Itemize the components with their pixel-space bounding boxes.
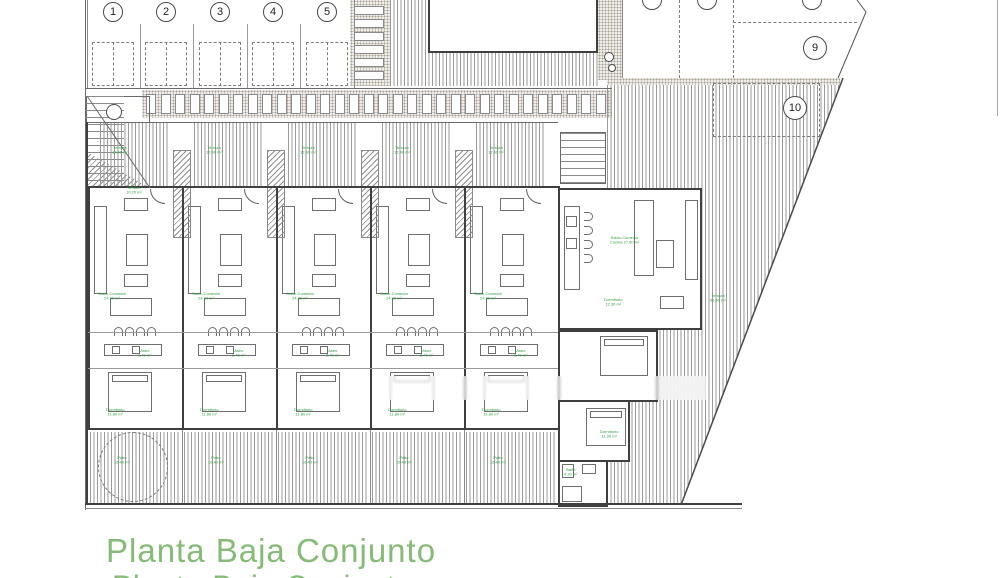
- shrub-icon: [608, 64, 616, 72]
- room-label: Patio 16.40 m²: [302, 456, 318, 465]
- room-label: Dormitorio 12.30 m²: [604, 298, 622, 307]
- entry-door-arc: [338, 189, 353, 204]
- room-label: Aseo 2.40 m²: [232, 349, 246, 358]
- paver-tile: [552, 94, 562, 114]
- wall-segment: [85, 508, 742, 509]
- bed-pillow: [590, 411, 622, 418]
- paver-tile: [354, 58, 384, 67]
- paver-tile: [204, 94, 214, 114]
- unit-patio: [184, 432, 274, 503]
- paver-tile: [335, 94, 345, 114]
- parking-stall-number: 5: [317, 2, 337, 22]
- paver-tile: [494, 94, 504, 114]
- wall-segment: [622, 0, 623, 78]
- bed-pillow: [300, 375, 336, 382]
- bed-pillow: [604, 339, 644, 346]
- room-label: Terraza 12.40 m²: [300, 146, 316, 155]
- room-label: Terraza 12.40 m²: [206, 146, 222, 155]
- unit-front-terrace: [382, 123, 452, 187]
- armchair: [124, 274, 148, 287]
- wall-segment: [182, 430, 183, 503]
- bed-pillow: [206, 375, 242, 382]
- room-label: Salón-Comedor 24.30 m²: [380, 292, 408, 301]
- armchair: [218, 198, 242, 211]
- armchair: [124, 198, 148, 211]
- room-label: Dormitorio 11.80 m²: [294, 408, 312, 417]
- paver-tile: [354, 45, 384, 54]
- clipped-stall-marker: [802, 0, 822, 10]
- wall-segment: [85, 503, 742, 505]
- room-label: Dormitorio 11.80 m²: [200, 408, 218, 417]
- paver-tile: [581, 94, 591, 114]
- paver-tile: [233, 94, 243, 114]
- unit-patio: [278, 432, 368, 503]
- paver-tile: [219, 94, 229, 114]
- parking-stall-midline: [327, 42, 328, 86]
- coffee-table: [656, 240, 674, 268]
- armchair: [406, 274, 430, 287]
- forecourt-divider: [679, 0, 680, 78]
- room-label: Terraza 12.40 m²: [112, 146, 128, 155]
- clipped-stall-marker: [697, 0, 717, 10]
- parking-stall-number: 4: [263, 2, 283, 22]
- paver-tile: [407, 94, 417, 114]
- paver-tile: [248, 94, 258, 114]
- armchair: [312, 198, 336, 211]
- plan-title: Planta Baja Conjunto: [106, 532, 436, 570]
- plan-subtitle-clipped: Planta Baja Conjunto: [112, 570, 472, 578]
- room-label: Dormitorio 11.80 m²: [388, 408, 406, 417]
- forecourt-divider: [733, 22, 857, 23]
- parking-stall-midline: [113, 42, 114, 86]
- wall-segment: [87, 0, 88, 88]
- room-label: Salón-Comedor 24.30 m²: [192, 292, 220, 301]
- wall-segment: [88, 368, 558, 369]
- paver-tile: [393, 94, 403, 114]
- armchair: [218, 274, 242, 287]
- paver-tile: [523, 94, 533, 114]
- parking-stall-number: 1: [103, 2, 123, 22]
- shrub-icon: [604, 52, 614, 62]
- sink-icon: [206, 346, 214, 354]
- wall-segment: [193, 24, 194, 88]
- parking-stall-midline: [166, 42, 167, 86]
- paver-tile: [354, 6, 384, 15]
- unit-patio: [466, 432, 556, 503]
- unit-front-terrace: [288, 123, 358, 187]
- swimming-pool: [428, 0, 598, 53]
- cooktop-icon: [566, 216, 577, 227]
- zone-marker-10: 10: [783, 96, 807, 120]
- coffee-table: [126, 234, 148, 266]
- room-label: Dormitorio 11.80 m²: [482, 408, 500, 417]
- sink-icon: [300, 346, 308, 354]
- wall-segment: [88, 332, 558, 333]
- wall-segment: [354, 0, 355, 88]
- room-label: Dormitorio 11.80 m²: [106, 408, 124, 417]
- coffee-table: [220, 234, 242, 266]
- paver-tile: [190, 94, 200, 114]
- wall-segment: [88, 122, 558, 123]
- room-label: Salón-Comedor 24.30 m²: [286, 292, 314, 301]
- room-label: Salón-Comedor Cocina 27.60 m²: [610, 236, 639, 245]
- wall-segment: [300, 24, 301, 88]
- unit-patio: [372, 432, 462, 503]
- paver-tile: [378, 94, 388, 114]
- room-label: Patio 16.40 m²: [490, 456, 506, 465]
- end-unit-stairs: [560, 132, 606, 184]
- entry-door-arc: [526, 189, 541, 204]
- paver-tile: [354, 32, 384, 41]
- wall-segment: [88, 428, 560, 430]
- wall-segment: [997, 0, 998, 116]
- plan-subtitle-text: Planta Baja Conjunto: [112, 570, 414, 578]
- paver-tile: [277, 94, 287, 114]
- paver-tile: [349, 94, 359, 114]
- armchair: [312, 274, 336, 287]
- unit-front-terrace: [194, 123, 264, 187]
- paver-tile: [175, 94, 185, 114]
- bar-stool-icon: [584, 212, 593, 221]
- entry-door-arc: [244, 189, 259, 204]
- sink-icon: [566, 238, 577, 249]
- paver-tile: [538, 94, 548, 114]
- entry-door-arc: [150, 189, 165, 204]
- armchair: [406, 198, 430, 211]
- armchair: [500, 198, 524, 211]
- paver-tile: [422, 94, 432, 114]
- sofa: [685, 200, 698, 280]
- sink-icon: [488, 346, 496, 354]
- paver-tile: [262, 94, 272, 114]
- bar-stool-icon: [584, 254, 593, 263]
- entry-door-arc: [432, 189, 447, 204]
- washbasin-icon: [582, 464, 596, 474]
- armchair: [500, 274, 524, 287]
- wall-segment: [558, 188, 560, 505]
- wall-segment: [464, 430, 465, 503]
- floor-plan-canvas: 12345 910 Terraza 12.40 m²Terraza 12.40 …: [0, 0, 1000, 578]
- wall-segment: [182, 188, 184, 430]
- room-label: Salón-Comedor 24.30 m²: [474, 292, 502, 301]
- room-label: Terraza 96.40 m²: [710, 294, 726, 303]
- paver-tile: [596, 94, 606, 114]
- room-label: Terraza 12.40 m²: [394, 146, 410, 155]
- paver-tile: [291, 94, 301, 114]
- paver-tile: [436, 94, 446, 114]
- parking-stall-number: 3: [210, 2, 230, 22]
- room-label: Patio 16.40 m²: [396, 456, 412, 465]
- paver-tile: [306, 94, 316, 114]
- paver-tile: [451, 94, 461, 114]
- clipped-stall-marker: [642, 0, 662, 10]
- coffee-table: [408, 234, 430, 266]
- paver-tile: [509, 94, 519, 114]
- wall-segment: [247, 24, 248, 88]
- armchair: [660, 296, 684, 309]
- wall-segment: [370, 430, 371, 503]
- sink-icon: [394, 346, 402, 354]
- coffee-table: [314, 234, 336, 266]
- room-label: Patio 16.40 m²: [208, 456, 224, 465]
- zone-marker-9: 9: [803, 36, 827, 60]
- watermark-blur-band: [388, 376, 706, 400]
- coffee-table: [502, 234, 524, 266]
- forecourt-divider: [733, 0, 734, 78]
- stepping-stone-icon: [106, 104, 122, 120]
- paver-tile: [480, 94, 490, 114]
- bar-stool-icon: [584, 226, 593, 235]
- parking-stall-midline: [220, 42, 221, 86]
- parking-stall-number: 2: [156, 2, 176, 22]
- paver-tile: [161, 94, 171, 114]
- parking-stall-midline: [273, 42, 274, 86]
- room-label: Salón-Comedor 24.30 m²: [98, 292, 126, 301]
- room-label: Aseo 2.40 m²: [420, 349, 434, 358]
- room-label: Dormitorio 11.90 m²: [600, 430, 618, 439]
- wall-segment: [370, 188, 372, 430]
- room-label: Aseo 2.40 m²: [514, 349, 528, 358]
- room-label: Baño 4.20 m²: [564, 468, 578, 477]
- room-label: Terraza 12.40 m²: [488, 146, 504, 155]
- paver-tile: [465, 94, 475, 114]
- paver-tile: [364, 94, 374, 114]
- unit-front-terrace: [476, 123, 546, 187]
- paver-tile: [567, 94, 577, 114]
- bar-stool-icon: [584, 240, 593, 249]
- shower-tray-icon: [562, 486, 582, 502]
- room-label: Aseo 2.40 m²: [138, 349, 152, 358]
- wall-segment: [276, 188, 278, 430]
- paver-tile: [354, 19, 384, 28]
- room-label: Aseo 2.40 m²: [326, 349, 340, 358]
- tree-canopy-icon: [98, 432, 168, 502]
- paver-tile: [354, 71, 384, 80]
- bed-pillow: [112, 375, 148, 382]
- wall-segment: [88, 188, 90, 430]
- sink-icon: [112, 346, 120, 354]
- unit-front-terrace: [100, 123, 170, 187]
- wall-segment: [276, 430, 277, 503]
- sofa: [94, 206, 107, 294]
- wall-segment: [85, 88, 612, 89]
- paver-tile: [320, 94, 330, 114]
- wall-segment: [88, 186, 560, 188]
- wall-segment: [140, 24, 141, 88]
- room-label: Terraza 10.20 m²: [126, 186, 142, 195]
